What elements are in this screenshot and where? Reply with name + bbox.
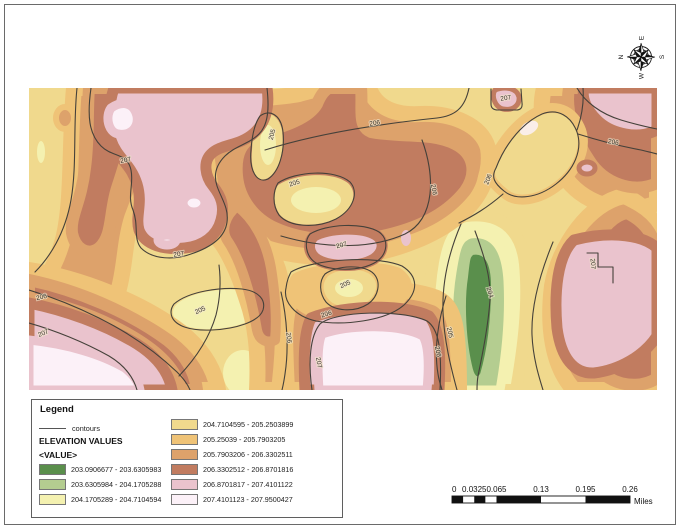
- legend-item: 205.25039 - 205.7903205: [171, 432, 293, 447]
- scale-bar-segments: [452, 496, 630, 503]
- scale-tick-label: 0.13: [533, 485, 549, 494]
- legend-class-label: 207.4101123 - 207.9500427: [203, 495, 293, 504]
- contours-label: contours: [72, 424, 100, 433]
- legend-class-label: 205.25039 - 205.7903205: [203, 435, 285, 444]
- legend-swatch: [171, 494, 198, 505]
- legend-value-field: <VALUE>: [39, 450, 77, 460]
- legend-class-label: 206.3302512 - 206.8701816: [203, 465, 293, 474]
- contour-line-symbol: [39, 428, 66, 429]
- scale-tick-label: 0: [452, 485, 457, 494]
- legend-swatch: [171, 479, 198, 490]
- scale-tick-labels: 00.03250.0650.130.1950.26: [452, 485, 638, 494]
- compass-letter-e: E: [639, 35, 646, 40]
- compass-letter-w: W: [639, 72, 646, 79]
- legend-swatch: [39, 464, 66, 475]
- legend-item: 206.8701817 - 207.4101122: [171, 477, 293, 492]
- legend-class-label: 203.0906677 - 203.6305983: [71, 465, 161, 474]
- north-arrow: NESW: [615, 30, 667, 84]
- contour-elevation-label: 206: [284, 332, 292, 344]
- legend-section-title: ELEVATION VALUES: [39, 436, 123, 446]
- scale-tick-label: 0.195: [575, 485, 596, 494]
- legend-item: 204.7104595 - 205.2503899: [171, 417, 293, 432]
- scale-unit-label: Miles: [634, 497, 653, 506]
- elevation-map: 2072052062072062062052062072072052062062…: [29, 88, 657, 390]
- compass-star: [627, 43, 655, 71]
- scale-bar: 00.03250.0650.130.1950.26 Miles: [445, 480, 673, 512]
- legend-item: 204.1705289 - 204.7104594: [39, 492, 161, 507]
- scale-tick-label: 0.0325: [462, 485, 487, 494]
- legend-swatch: [39, 494, 66, 505]
- legend-column-left: 203.0906677 - 203.6305983203.6305984 - 2…: [39, 462, 161, 507]
- legend-contours-row: contours: [39, 422, 100, 434]
- legend-swatch: [39, 479, 66, 490]
- legend-swatch: [171, 434, 198, 445]
- legend: Legend contours ELEVATION VALUES <VALUE>…: [31, 399, 343, 518]
- legend-item: 203.6305984 - 204.1705288: [39, 477, 161, 492]
- contour-elevation-label: 207: [589, 258, 597, 270]
- scale-tick-label: 0.26: [622, 485, 638, 494]
- legend-item: 207.4101123 - 207.9500427: [171, 492, 293, 507]
- legend-class-label: 206.8701817 - 207.4101122: [203, 480, 293, 489]
- legend-title: Legend: [40, 404, 74, 415]
- legend-class-label: 203.6305984 - 204.1705288: [71, 480, 161, 489]
- legend-item: 206.3302512 - 206.8701816: [171, 462, 293, 477]
- scale-tick-label: 0.065: [486, 485, 507, 494]
- legend-item: 205.7903206 - 206.3302511: [171, 447, 293, 462]
- legend-class-label: 204.7104595 - 205.2503899: [203, 420, 293, 429]
- legend-item: 203.0906677 - 203.6305983: [39, 462, 161, 477]
- legend-swatch: [171, 419, 198, 430]
- legend-swatch: [171, 464, 198, 475]
- compass-letter-n: N: [618, 54, 625, 59]
- legend-column-right: 204.7104595 - 205.2503899205.25039 - 205…: [171, 417, 293, 507]
- legend-class-label: 205.7903206 - 206.3302511: [203, 450, 293, 459]
- map-layout-canvas: 2072052062072062062052062072072052062062…: [0, 0, 680, 529]
- legend-class-label: 204.1705289 - 204.7104594: [71, 495, 161, 504]
- legend-swatch: [171, 449, 198, 460]
- compass-letter-s: S: [659, 54, 666, 59]
